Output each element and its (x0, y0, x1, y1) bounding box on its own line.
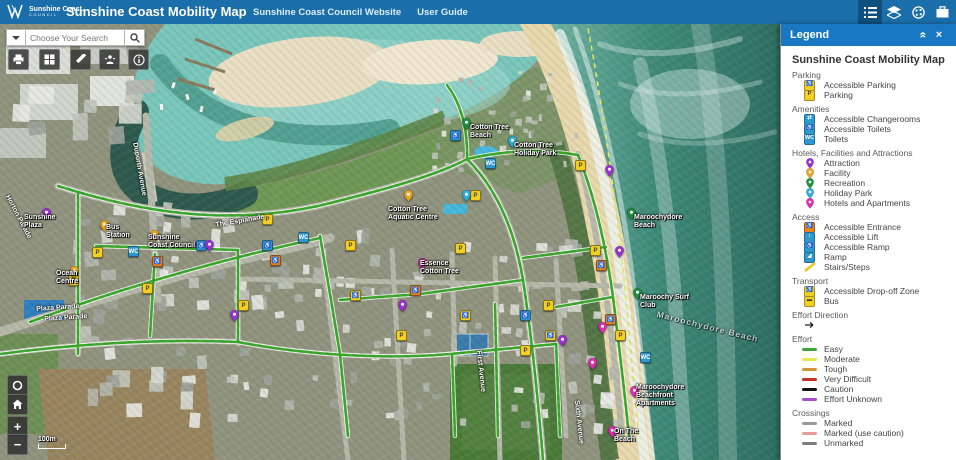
close-panel-button[interactable]: × (931, 27, 947, 43)
attraction-marker[interactable] (605, 164, 614, 182)
legend-swatch (802, 432, 817, 435)
print-icon (13, 54, 24, 65)
map-label: Ocean Centre (56, 270, 96, 286)
legend-item-parking: PParking (792, 90, 952, 100)
legend-item-effort-unknown: Effort Unknown (792, 394, 952, 404)
legend-item-label: Toilets (824, 134, 848, 144)
legend-item-bus: ▬Bus (792, 296, 952, 306)
accessible-entrance-marker[interactable]: ♿ (596, 260, 607, 271)
map-label: Maroochydore Beachfront Apartments (636, 384, 698, 408)
accessible-parking-marker[interactable]: ♿ (545, 330, 556, 341)
legend-item-label: Recreation (824, 178, 865, 188)
attraction-marker[interactable] (230, 309, 239, 327)
home-button[interactable] (7, 394, 28, 415)
legend-item-marked: Marked (792, 418, 952, 428)
map-label: Maroochy Surf Club (640, 294, 690, 310)
zoom-in-label: + (14, 419, 22, 434)
parking-marker[interactable]: P (238, 300, 249, 311)
legend-map-title: Sunshine Coast Mobility Map (792, 54, 952, 66)
legend-item-accessible-drop-off-zone: ♿Accessible Drop-off Zone (792, 286, 952, 296)
legend-item-label: Hotels and Apartments (824, 198, 910, 208)
legend-item-label: Marked (use caution) (824, 428, 904, 438)
scale-label: 100m (38, 436, 56, 443)
header-links: Sunshine Coast Council Website User Guid… (253, 0, 468, 24)
legend-item-moderate: Moderate (792, 354, 952, 364)
parking-marker[interactable]: P (455, 243, 466, 254)
legend-section-parking: Parking♿Accessible ParkingPParking (792, 70, 952, 100)
info-icon (133, 54, 145, 66)
legend-panel-header: Legend « × (781, 24, 956, 46)
legend-section-access: Access♿Accessible Entrance↕Accessible Li… (792, 212, 952, 272)
briefcase-icon (936, 6, 949, 18)
legend-item-stairs-steps: Stairs/Steps (792, 262, 952, 272)
map-label: Maroochydore Beach (634, 214, 690, 230)
legend-swatch (802, 368, 817, 371)
app-window: PPPPPPPPPPPPPP♿♿♿WCWCWCWC♿♿♿♿♿♿♿♿♿ Cotto… (0, 0, 956, 460)
attraction-marker[interactable] (615, 245, 624, 263)
legend-item-ramp: ◢Ramp (792, 252, 952, 262)
attraction-marker[interactable] (205, 239, 214, 257)
header-toolbar (858, 0, 954, 24)
legend-item-label: Holiday Park (824, 188, 872, 198)
map-label: Cotton Tree Holiday Park (514, 142, 570, 158)
parking-marker[interactable]: P (590, 245, 601, 256)
close-icon: × (936, 29, 942, 41)
parking-marker[interactable]: P (142, 283, 153, 294)
legend-swatch: ◢ (802, 252, 817, 263)
home-icon (12, 399, 23, 410)
holiday-park-marker[interactable] (462, 189, 471, 207)
person-icon (104, 54, 116, 66)
legend-swatch: WC (802, 134, 817, 145)
map-label: Bus Station (106, 224, 140, 240)
legend-item-holiday-park: Holiday Park (792, 188, 952, 198)
legend-item-tough: Tough (792, 364, 952, 374)
legend-item-facility: Facility (792, 168, 952, 178)
legend-item-label: Facility (824, 168, 850, 178)
legend-item (792, 320, 952, 330)
chevron-down-icon (12, 35, 20, 41)
legend-item-label: Easy (824, 344, 843, 354)
parking-marker[interactable]: P (92, 247, 103, 258)
legend-item-label: Accessible Parking (824, 80, 896, 90)
legend-section-title: Hotels, Facilities and Attractions (792, 148, 952, 158)
search-bar (6, 29, 145, 46)
legend-item-label: Accessible Lift (824, 232, 878, 242)
accessible-entrance-marker[interactable]: ♿ (410, 285, 421, 296)
legend-item-caution: Caution (792, 384, 952, 394)
map-label: Essence Cotton Tree (420, 260, 466, 276)
map-label: Cotton Tree Beach (470, 124, 518, 140)
legend-swatch (802, 358, 817, 361)
legend-item-label: Attraction (824, 158, 860, 168)
legend-item-marked-use-caution-: Marked (use caution) (792, 428, 952, 438)
legend-item-easy: Easy (792, 344, 952, 354)
toilets-marker[interactable]: WC (485, 158, 496, 169)
legend-item-attraction: Attraction (792, 158, 952, 168)
legend-section-crossings: CrossingsMarkedMarked (use caution)Unmar… (792, 408, 952, 448)
accessible-parking-marker[interactable]: ♿ (460, 310, 471, 321)
legend-item-accessible-changerooms: ⇄Accessible Changerooms (792, 114, 952, 124)
legend-item-accessible-lift: ↕Accessible Lift (792, 232, 952, 242)
facility-marker[interactable] (404, 189, 413, 207)
hotels-marker[interactable] (588, 357, 597, 375)
legend-item-accessible-entrance: ♿Accessible Entrance (792, 222, 952, 232)
parking-marker[interactable]: P (470, 190, 481, 201)
accessible-toilets-marker[interactable]: ♿ (450, 130, 461, 141)
parking-marker[interactable]: P (575, 160, 586, 171)
legend-section-title: Crossings (792, 408, 952, 418)
legend-swatch (802, 388, 817, 391)
legend-section-transport: Transport♿Accessible Drop-off Zone▬Bus (792, 276, 952, 306)
scale-bar-line (38, 444, 66, 449)
accessible-entrance-marker[interactable]: ♿ (152, 256, 163, 267)
parking-marker[interactable]: P (345, 240, 356, 251)
basemap-palette-icon (912, 6, 925, 19)
collapse-icon: « (916, 32, 930, 39)
zoom-out-label: − (14, 437, 22, 452)
map-label: Sunshine Coast Council (148, 234, 200, 250)
legend-swatch (802, 198, 817, 209)
legend-item-label: Accessible Entrance (824, 222, 901, 232)
apps-tool-button[interactable] (39, 49, 60, 70)
parking-marker[interactable]: P (615, 330, 626, 341)
legend-item-label: Marked (824, 418, 852, 428)
legend-section-title: Amenities (792, 104, 952, 114)
scale-bar: 100m (38, 436, 66, 449)
legend-item-label: Unmarked (824, 438, 863, 448)
draw-tool-button[interactable] (70, 49, 91, 70)
legend-swatch (802, 398, 817, 401)
attraction-marker[interactable] (398, 299, 407, 317)
zoom-out-button[interactable]: − (7, 434, 28, 455)
legend-item-label: Tough (824, 364, 847, 374)
map-label: On The Beach (614, 428, 654, 444)
hotels-marker[interactable] (598, 321, 607, 339)
accessible-toilets-marker[interactable]: ♿ (520, 310, 531, 321)
grid-icon (44, 54, 55, 65)
parking-marker[interactable]: P (520, 345, 531, 356)
legend-swatch (802, 378, 817, 381)
search-input[interactable] (26, 29, 124, 46)
info-tool-button[interactable] (128, 49, 149, 70)
legend-item-very-difficult: Very Difficult (792, 374, 952, 384)
accessible-toilets-marker[interactable]: ♿ (262, 240, 273, 251)
legend-item-label: Bus (824, 296, 839, 306)
collapse-panel-button[interactable]: « (915, 27, 931, 43)
wave-logo-icon (6, 3, 26, 20)
legend-item-label: Caution (824, 384, 853, 394)
bookmarks-tool-button[interactable] (930, 0, 954, 24)
legend-item-accessible-toilets: ♿Accessible Toilets (792, 124, 952, 134)
map-label: Sunshine Plaza (24, 214, 68, 230)
legend-section-title: Effort (792, 334, 952, 344)
legend-swatch: ▬ (802, 296, 817, 307)
street-view-tool-button[interactable] (99, 49, 120, 70)
legend-item-label: Moderate (824, 354, 860, 364)
legend-item-label: Accessible Ramp (824, 242, 890, 252)
legend-swatch (802, 262, 817, 272)
search-source-dropdown[interactable] (6, 29, 26, 46)
map-label: Cotton Tree Aquatic Centre (388, 206, 446, 222)
map-canvas[interactable]: PPPPPPPPPPPPPP♿♿♿WCWCWCWC♿♿♿♿♿♿♿♿♿ Cotto… (0, 24, 781, 460)
user-guide-link[interactable]: User Guide (417, 7, 468, 18)
legend-section-effort: EffortEasyModerateToughVery DifficultCau… (792, 334, 952, 404)
legend-item-label: Accessible Changerooms (824, 114, 920, 124)
legend-section-title: Transport (792, 276, 952, 286)
app-header: Sunshine Coast. COUNCIL Sunshine Coast M… (0, 0, 956, 24)
legend-body: Sunshine Coast Mobility Map Parking♿Acce… (781, 46, 956, 448)
legend-swatch (802, 348, 817, 351)
legend-item-label: Ramp (824, 252, 847, 262)
legend-item-accessible-parking: ♿Accessible Parking (792, 80, 952, 90)
legend-swatch (802, 442, 817, 445)
parking-marker[interactable]: P (396, 330, 407, 341)
search-icon (130, 33, 140, 43)
layers-tool-button[interactable] (882, 0, 906, 24)
toilets-marker[interactable]: WC (128, 246, 139, 257)
legend-item-label: Accessible Toilets (824, 124, 891, 134)
legend-list-icon (864, 7, 877, 18)
legend-panel: Legend « × Sunshine Coast Mobility Map P… (780, 24, 956, 460)
legend-section-title: Parking (792, 70, 952, 80)
toilets-marker[interactable]: WC (640, 352, 651, 363)
legend-item-label: Accessible Drop-off Zone (824, 286, 919, 296)
accessible-parking-marker[interactable]: ♿ (350, 290, 361, 301)
legend-item-label: Effort Unknown (824, 394, 882, 404)
legend-panel-title: Legend (790, 29, 829, 41)
attraction-marker[interactable] (558, 334, 567, 352)
legend-item-accessible-ramp: ♿Accessible Ramp (792, 242, 952, 252)
legend-section-title: Effort Direction (792, 310, 952, 320)
legend-item-recreation: Recreation (792, 178, 952, 188)
toilets-marker[interactable]: WC (298, 232, 309, 243)
legend-swatch (802, 422, 817, 425)
locate-button[interactable] (7, 375, 28, 396)
legend-item-toilets: WCToilets (792, 134, 952, 144)
legend-section-effort-direction: Effort Direction (792, 310, 952, 330)
basemap-tool-button[interactable] (906, 0, 930, 24)
locate-icon (12, 380, 23, 391)
legend-tool-button[interactable] (858, 0, 882, 24)
accessible-entrance-marker[interactable]: ♿ (270, 255, 281, 266)
legend-item-label: Parking (824, 90, 853, 100)
legend-item-hotels-and-apartments: Hotels and Apartments (792, 198, 952, 208)
pencil-icon (75, 54, 87, 66)
legend-swatch: P (802, 90, 817, 101)
legend-section-amenities: Amenities⇄Accessible Changerooms♿Accessi… (792, 104, 952, 144)
legend-item-label: Stairs/Steps (824, 262, 870, 272)
council-website-link[interactable]: Sunshine Coast Council Website (253, 7, 401, 18)
legend-item-unmarked: Unmarked (792, 438, 952, 448)
parking-marker[interactable]: P (543, 300, 554, 311)
legend-swatch (802, 321, 817, 329)
layers-icon (887, 6, 901, 19)
print-tool-button[interactable] (8, 49, 29, 70)
legend-item-label: Very Difficult (824, 374, 871, 384)
legend-section-hotels-facilities-and-attractions: Hotels, Facilities and AttractionsAttrac… (792, 148, 952, 208)
page-title: Sunshine Coast Mobility Map (66, 4, 247, 19)
legend-section-title: Access (792, 212, 952, 222)
search-button[interactable] (124, 29, 145, 46)
